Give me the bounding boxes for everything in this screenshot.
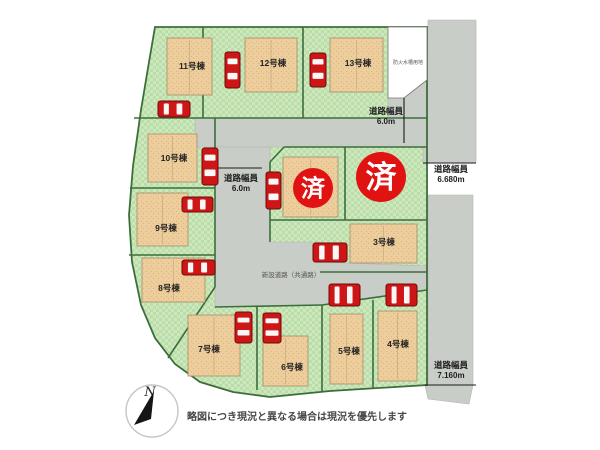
car-window — [228, 58, 238, 64]
lot-label: 3号棟 — [373, 237, 395, 247]
road-width-value: 7.160m — [437, 371, 464, 380]
car-window — [188, 263, 193, 273]
car-icon — [263, 313, 281, 343]
road-width-label: 道路幅員 — [434, 164, 469, 174]
lot-label: 5号棟 — [338, 346, 360, 356]
car-icon — [266, 172, 281, 209]
car-window — [164, 104, 169, 115]
road-east-bottom — [425, 385, 473, 404]
car-body — [235, 312, 252, 343]
car-window — [404, 287, 410, 304]
car-window — [266, 318, 279, 323]
sold-badge: 済 — [356, 152, 406, 202]
caption: 略図につき現況と異なる場合は現況を優先します — [187, 410, 407, 423]
parcel-note: 防火水槽用地 — [393, 59, 423, 66]
car-body — [158, 101, 190, 117]
car-body — [225, 52, 240, 88]
car-window — [333, 246, 339, 260]
car-window — [335, 287, 340, 304]
road-width-label: 道路幅員 — [434, 360, 469, 370]
sold-badge-text: 済 — [366, 160, 398, 195]
car-window — [200, 200, 206, 210]
car-window — [319, 246, 324, 260]
car-window — [238, 318, 250, 323]
car-body — [266, 172, 281, 209]
car-icon — [329, 284, 360, 306]
road-name-label: 新設道路（共通路） — [262, 270, 321, 279]
car-window — [188, 200, 193, 210]
car-icon — [310, 53, 326, 87]
site-plan-page: 防火水槽用地11号棟12号棟13号棟10号棟9号棟8号棟7号棟6号棟5号棟4号棟… — [0, 0, 600, 450]
car-icon — [182, 260, 215, 275]
car-window — [392, 287, 397, 304]
compass: N — [126, 385, 178, 437]
car-body — [263, 313, 281, 343]
car-window — [228, 73, 238, 79]
car-icon — [182, 197, 213, 212]
car-icon — [202, 148, 218, 185]
car-body — [182, 197, 213, 212]
lot-label: 12号棟 — [260, 58, 287, 68]
car-window — [313, 73, 324, 79]
car-icon — [313, 243, 347, 262]
car-window — [205, 169, 216, 176]
lot-label: 6号棟 — [281, 362, 303, 372]
road-width-value: 6.0m — [232, 184, 250, 193]
car-body — [386, 284, 417, 306]
lot-label: 9号棟 — [155, 223, 177, 233]
car-body — [313, 243, 347, 262]
lot-label: 8号棟 — [158, 283, 180, 293]
car-window — [238, 330, 250, 336]
car-window — [177, 104, 183, 115]
lot-label: 4号棟 — [387, 339, 409, 349]
sold-badge: 済 — [293, 168, 333, 208]
car-body — [182, 260, 215, 275]
sold-badge-text: 済 — [301, 175, 326, 203]
road-width-label: 道路幅員 — [224, 173, 259, 183]
lot-label: 7号棟 — [198, 344, 220, 354]
car-window — [347, 287, 353, 304]
road-width-label: 道路幅員 — [369, 106, 404, 116]
car-body — [202, 148, 218, 185]
road-east-mid — [428, 195, 473, 385]
car-body — [310, 53, 326, 87]
car-window — [205, 155, 216, 161]
car-body — [329, 284, 360, 306]
car-icon — [158, 101, 190, 117]
car-icon — [235, 312, 252, 343]
car-icon — [386, 284, 417, 306]
car-window — [313, 59, 324, 64]
car-window — [201, 263, 207, 273]
lot-label: 13号棟 — [345, 58, 372, 68]
site-plan-map: 防火水槽用地11号棟12号棟13号棟10号棟9号棟8号棟7号棟6号棟5号棟4号棟… — [0, 0, 600, 450]
car-window — [269, 179, 279, 185]
road-width-value: 6.0m — [377, 117, 395, 126]
car-icon — [225, 52, 240, 88]
car-window — [266, 330, 279, 335]
car-window — [269, 193, 279, 200]
lot-label: 10号棟 — [161, 153, 188, 163]
lot-label: 11号棟 — [179, 61, 205, 71]
north-label: N — [143, 385, 156, 400]
road-width-value: 6.680m — [437, 175, 464, 184]
